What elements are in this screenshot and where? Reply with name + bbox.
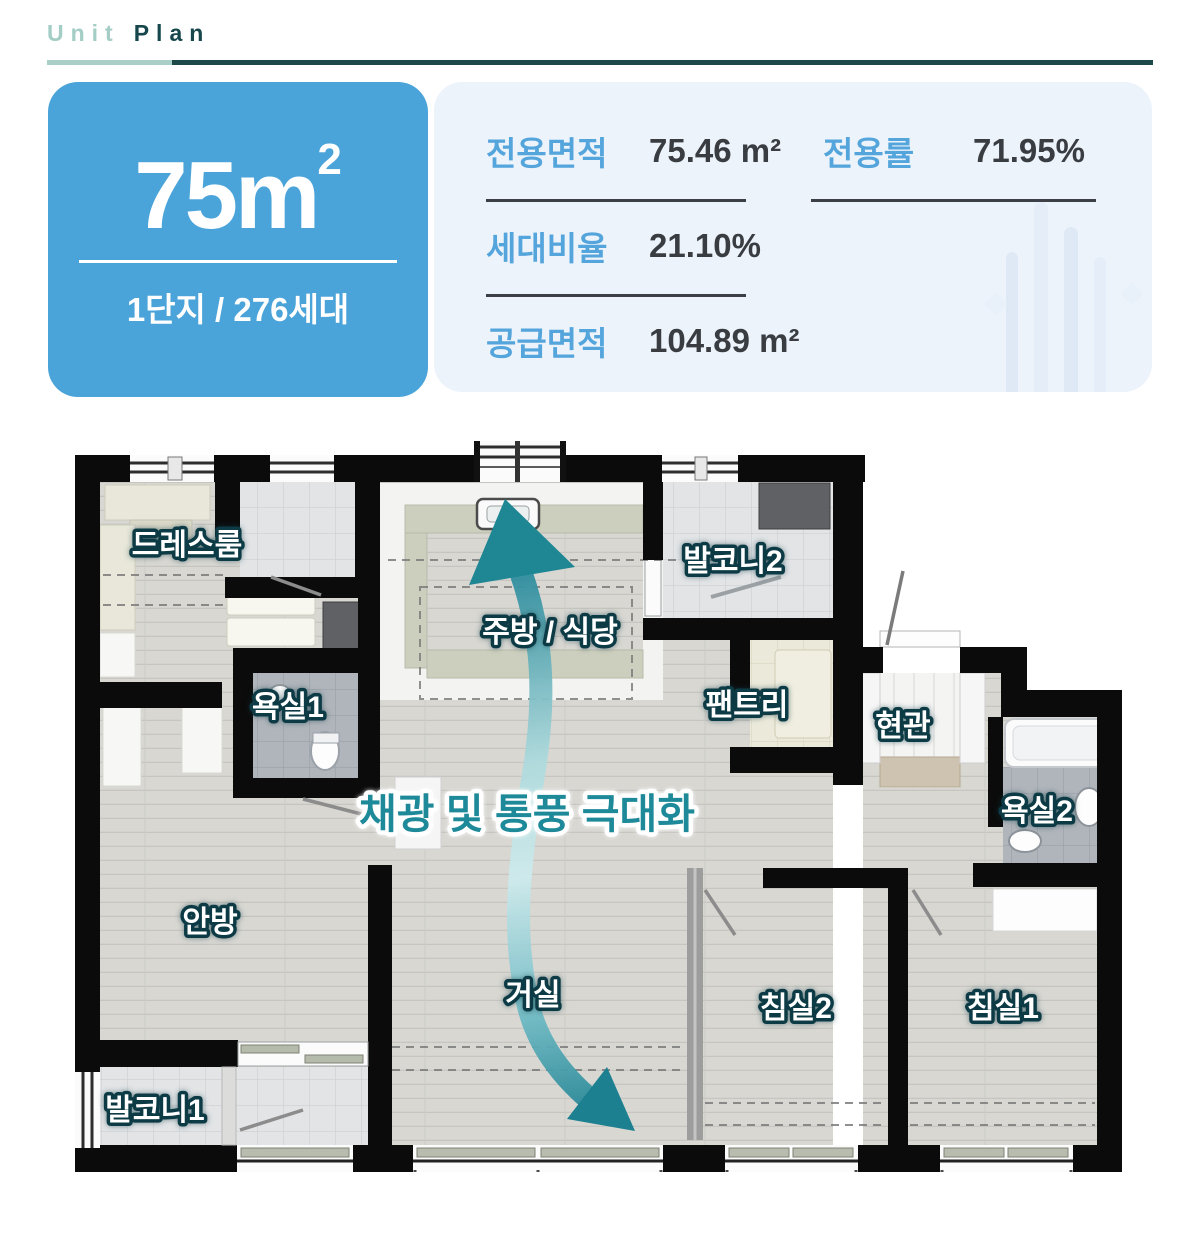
complex-info: 1단지 / 276세대 (127, 283, 349, 331)
sliding-partition (687, 868, 703, 1140)
stat-label: 전용률 (823, 127, 973, 175)
balcony1-divider (222, 1067, 236, 1145)
master-sliding-door (238, 1042, 368, 1066)
stats-row-2: 세대비율 21.10% (486, 223, 1152, 269)
stat-household-ratio: 세대비율 21.10% (486, 222, 776, 270)
kitchen-bay-window (474, 441, 566, 482)
room-label-balcony1: 발코니1 (105, 1094, 205, 1127)
page-header: UnitPlan (47, 20, 1153, 47)
area-size: 75m2 (134, 148, 342, 244)
room-label-living: 거실 (505, 979, 560, 1012)
stats-card: 전용면적 75.46 m² 전용률 71.95% 세대비율 21.10% 공급면… (434, 82, 1152, 392)
stat-value: 104.89 m² (649, 322, 799, 360)
stat-label: 공급면적 (486, 317, 649, 365)
window-left (75, 1072, 100, 1148)
utility-room-floor (240, 482, 355, 577)
room-label-bath1: 욕실1 (252, 691, 324, 724)
area-divider (79, 260, 397, 263)
underline-dark-segment (172, 60, 1153, 65)
area-badge: 75m2 1단지 / 276세대 (48, 82, 428, 397)
room-label-bedroom2: 침실2 (760, 992, 832, 1025)
stat-label: 세대비율 (486, 222, 649, 270)
room-label-dressroom: 드레스룸 (132, 529, 242, 562)
room-label-master: 안방 (182, 906, 238, 939)
stat-supply-area: 공급면적 104.89 m² (486, 317, 776, 365)
area-unit: m (235, 148, 317, 244)
balcony2-door (645, 558, 661, 616)
stat-value: 71.95% (973, 132, 1085, 170)
room-label-pantry: 팬트리 (706, 689, 789, 722)
stat-value: 75.46 m² (649, 132, 781, 170)
title-underline (47, 60, 1153, 65)
room-label-bedroom1: 침실1 (967, 992, 1039, 1025)
stats-divider-2 (486, 294, 1152, 297)
stats-row-1: 전용면적 75.46 m² 전용률 71.95% (486, 128, 1152, 174)
bath1-floor (253, 673, 358, 778)
unit-summary: 75m2 1단지 / 276세대 전용면적 75.46 m² 전용률 71.95… (48, 82, 1152, 397)
area-unit-sup: 2 (317, 138, 341, 182)
stat-value: 21.10% (649, 227, 761, 265)
room-label-kitchen: 주방 / 식당 (482, 616, 618, 649)
room-label-entrance: 현관 (875, 710, 930, 743)
room-label-bath2: 욕실2 (1001, 795, 1073, 828)
floorplan: 드레스룸 욕실1 주방 / 식당 발코니2 팬트리 현관 욕실2 안방 거실 침… (75, 439, 1122, 1172)
balcony2-shaft (759, 483, 830, 529)
page-title: UnitPlan (47, 20, 1153, 47)
page-title-light: Unit (47, 20, 120, 46)
utility2-floor (236, 1067, 368, 1145)
underline-light-segment (47, 60, 172, 65)
stats-divider-1 (486, 199, 1152, 202)
stat-exclusive-area: 전용면적 75.46 m² (486, 127, 776, 175)
page-title-bold: Plan (134, 20, 211, 46)
room-label-balcony2: 발코니2 (683, 545, 783, 578)
stats-row-3: 공급면적 104.89 m² (486, 318, 1152, 364)
airflow-annotation: 채광 및 통풍 극대화 (359, 791, 695, 837)
stat-label: 전용면적 (486, 127, 649, 175)
stat-exclusive-ratio: 전용률 71.95% (823, 127, 1085, 175)
bedroom1-furniture (993, 889, 1097, 931)
area-number: 75 (134, 148, 235, 244)
